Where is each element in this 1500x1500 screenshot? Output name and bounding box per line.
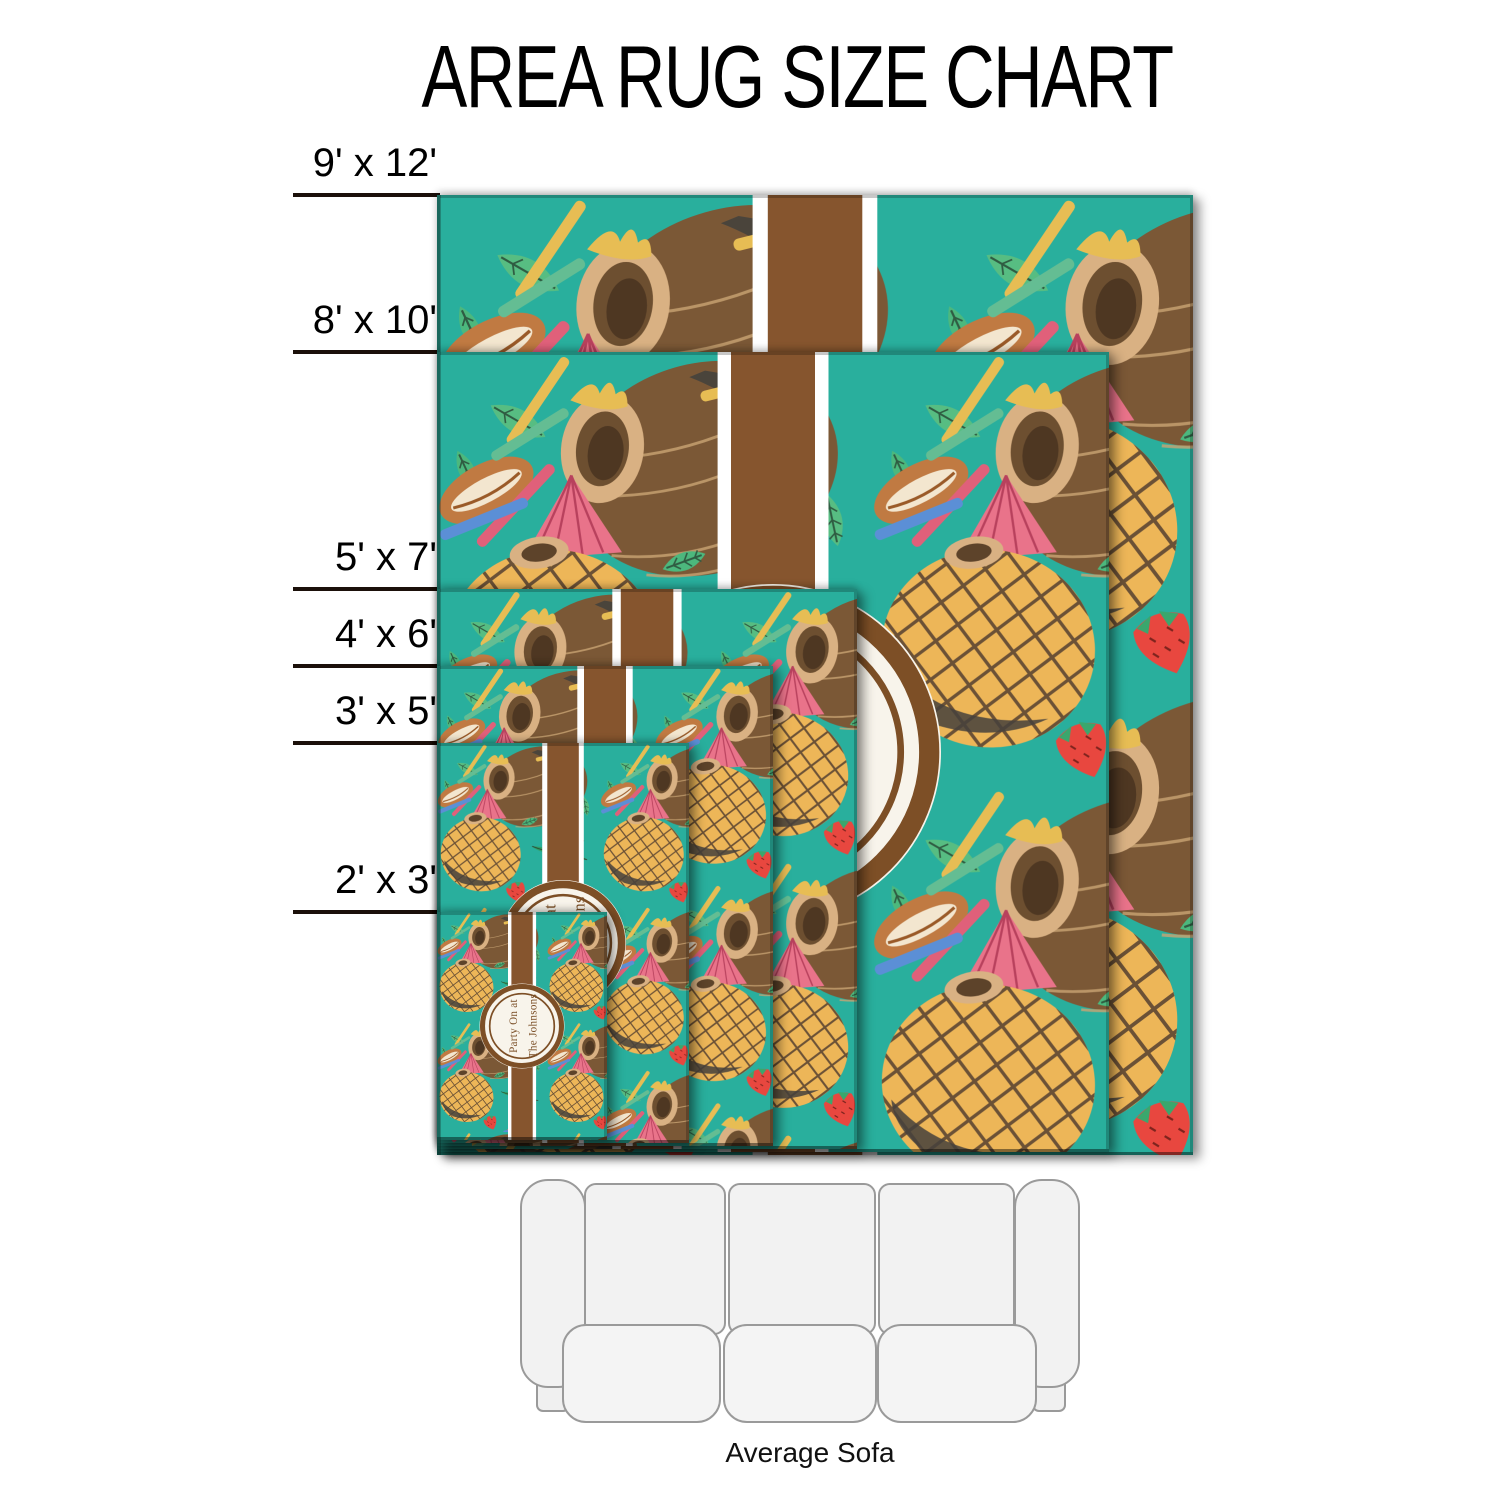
monogram-line2: The Johnsons [528, 994, 540, 1058]
size-line-5x7 [293, 587, 440, 591]
size-line-9x12 [293, 193, 440, 197]
size-line-4x6 [293, 664, 440, 668]
size-label-4x6: 4' x 6' [227, 612, 437, 657]
rug-size-chart-canvas: AREA RUG SIZE CHART [0, 0, 1500, 1500]
page-title: AREA RUG SIZE CHART [316, 26, 1279, 128]
size-label-3x5: 3' x 5' [227, 689, 437, 734]
sofa-seat-cushion [878, 1325, 1036, 1422]
size-label-8x10: 8' x 10' [227, 298, 437, 343]
rug-monogram-circle: Party On at The Johnsons [480, 984, 565, 1069]
size-label-5x7: 5' x 7' [227, 535, 437, 580]
size-line-3x5 [293, 741, 440, 745]
size-line-2x3 [293, 910, 440, 914]
sofa-seat-cushion [724, 1325, 876, 1422]
sofa-seat-cushion [563, 1325, 720, 1422]
sofa-back-cushion [879, 1184, 1014, 1334]
size-line-8x10 [293, 350, 440, 354]
size-label-9x12: 9' x 12' [227, 141, 437, 186]
sofa-back-cushion [729, 1184, 875, 1334]
rug-2x3: Party On at The Johnsons [437, 912, 607, 1140]
sofa-top-view [500, 1170, 1100, 1450]
sofa-back-cushion [585, 1184, 725, 1334]
page-title-text: AREA RUG SIZE CHART [422, 26, 1173, 128]
sofa-caption: Average Sofa [725, 1437, 894, 1469]
monogram-line1: Party On at [508, 998, 520, 1052]
size-label-2x3: 2' x 3' [227, 858, 437, 903]
